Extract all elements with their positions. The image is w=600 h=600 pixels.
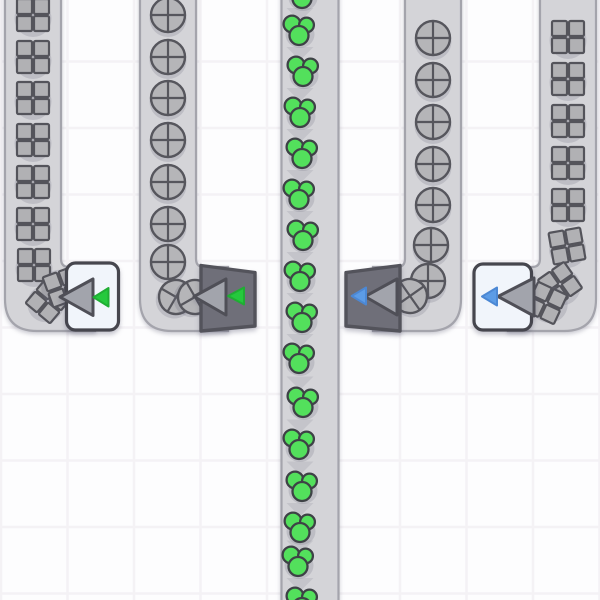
- item-square: [550, 63, 587, 101]
- item-circle: [150, 81, 187, 120]
- game-scene: [0, 0, 600, 600]
- item-square: [15, 41, 52, 79]
- item-circle: [150, 40, 187, 79]
- item-square: [15, 124, 52, 162]
- item-circle: [415, 147, 452, 186]
- item-square: [550, 147, 587, 185]
- item-circle: [415, 21, 452, 60]
- item-square: [15, 82, 52, 120]
- item-circle: [150, 207, 187, 246]
- item-square: [550, 105, 587, 143]
- item-square: [15, 208, 52, 246]
- item-circle: [415, 105, 452, 144]
- game-viewport: [0, 0, 600, 600]
- item-square: [550, 21, 587, 59]
- item-circle: [150, 165, 187, 204]
- item-circle: [415, 188, 452, 227]
- item-circle: [150, 245, 187, 284]
- item-circle: [413, 228, 450, 267]
- device-3-trapezoid-blue[interactable]: [346, 266, 400, 332]
- item-square: [15, 166, 52, 204]
- item-square: [15, 0, 52, 37]
- item-square: [550, 189, 587, 227]
- item-circle: [150, 123, 187, 162]
- device-2-trapezoid-green[interactable]: [194, 266, 255, 332]
- device-4-box-blue[interactable]: [474, 264, 534, 330]
- item-circle: [150, 0, 187, 37]
- device-1-box-green[interactable]: [60, 263, 119, 330]
- item-circle: [415, 63, 452, 102]
